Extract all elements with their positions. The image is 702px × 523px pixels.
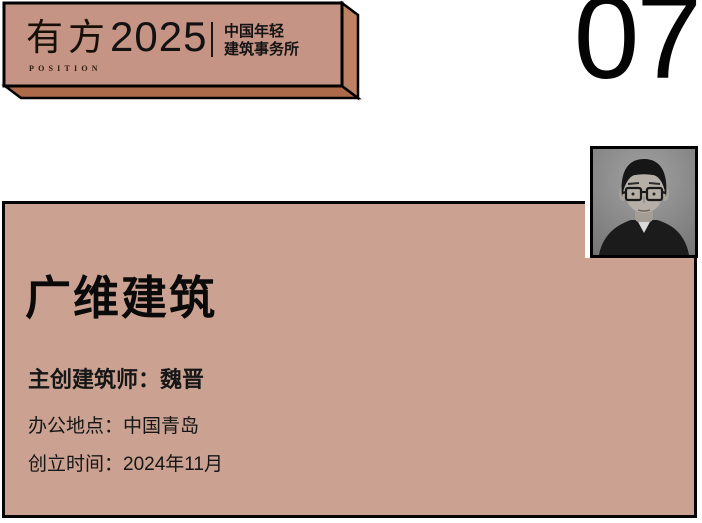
brand-logo-subtext: POSITION xyxy=(29,64,102,73)
banner-year: 2025 xyxy=(110,16,207,58)
founded-line: 创立时间：2024年11月 xyxy=(28,449,223,476)
studio-name-title: 广维建筑 xyxy=(25,272,217,325)
portrait-photo-block xyxy=(585,146,698,258)
architect-line: 主创建筑师：魏晋 xyxy=(28,362,204,394)
banner-3d-box: 有方 POSITION 2025 中国年轻 建筑事务所 xyxy=(0,0,366,104)
location-line: 办公地点：中国青岛 xyxy=(28,411,199,438)
banner-divider-line xyxy=(211,22,213,57)
banner-tagline-line2: 建筑事务所 xyxy=(224,41,299,59)
portrait-photo-frame xyxy=(590,146,698,258)
brand-logo-text: 有方 xyxy=(26,19,110,60)
banner-tagline-line1: 中国年轻 xyxy=(224,23,299,41)
portrait-photo xyxy=(593,149,695,255)
page-number: 07 xyxy=(574,0,699,97)
poster-page: 有方 POSITION 2025 中国年轻 建筑事务所 07 xyxy=(0,0,702,523)
banner-tagline: 中国年轻 建筑事务所 xyxy=(224,23,299,59)
